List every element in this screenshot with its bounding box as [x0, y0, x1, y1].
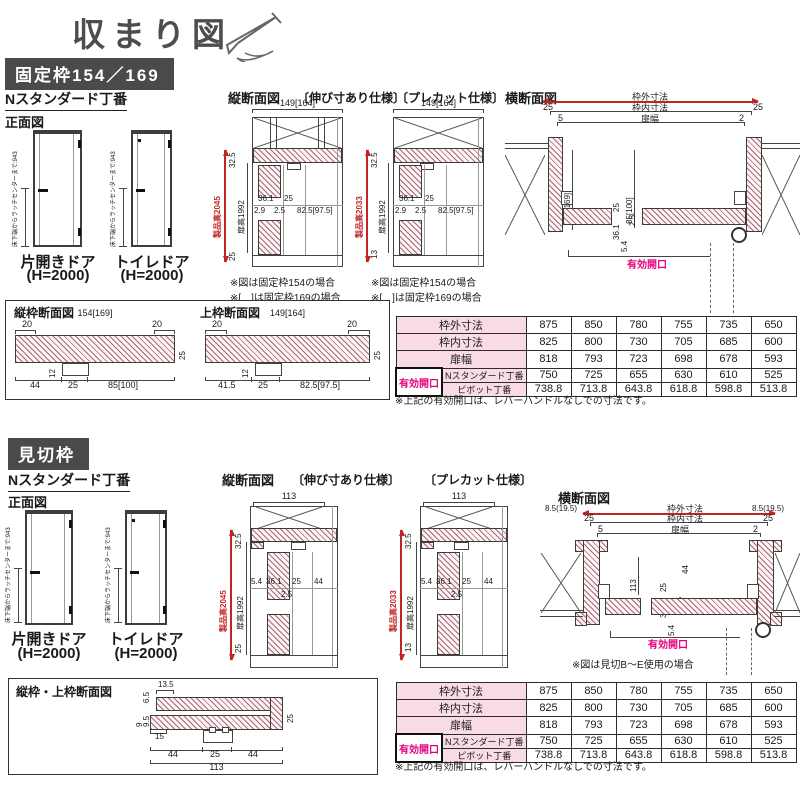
- dim-label: 20: [22, 320, 32, 330]
- dim-label: 8.5(19.5): [545, 505, 577, 514]
- s1-door2-drawing: [131, 130, 172, 247]
- dim-label: 2: [753, 525, 758, 535]
- wall-x-icon: [541, 553, 581, 613]
- stop-nub: [209, 727, 216, 733]
- s2-door2-drawing: [125, 510, 167, 625]
- s2-vs2-product-height: 製品高2033: [390, 590, 398, 632]
- cell: 780: [616, 317, 661, 334]
- stop-profile: [62, 363, 89, 376]
- cell: 825: [526, 700, 571, 717]
- row-label: 枠内寸法: [396, 334, 526, 351]
- cell: 598.8: [706, 382, 751, 396]
- trim-frame-section: [251, 528, 337, 542]
- dim-label: 25: [68, 381, 78, 391]
- cell: 800: [571, 334, 616, 351]
- row-label: 枠外寸法: [396, 317, 526, 334]
- s2-vs2-bottom-gap: 13: [405, 643, 413, 652]
- s1-latch-dim-text: 床下端からラッチセンターまで:943: [111, 151, 117, 247]
- dim-label: 25: [258, 381, 268, 391]
- wall-line: [540, 616, 583, 617]
- cell: 698: [661, 717, 706, 735]
- dim-tick: [251, 377, 252, 382]
- s1-vs2-note1: ※図は固定枠154の場合: [371, 274, 476, 289]
- dim-label: 2.5: [281, 591, 292, 600]
- dim-label: 5.4: [668, 625, 676, 636]
- cell: 818: [526, 351, 571, 369]
- cell: 618.8: [661, 748, 706, 762]
- cell: 730: [616, 334, 661, 351]
- latch-block: [747, 584, 759, 599]
- dim-line: [15, 330, 36, 334]
- section1-banner: 固定枠154／169: [5, 58, 174, 90]
- trim-profile-lower: [150, 715, 283, 730]
- s2-vs1-door-height: 扉高1992: [237, 596, 245, 630]
- s1-hs-opening-label: 有効開口: [627, 260, 667, 271]
- cell: 755: [661, 317, 706, 334]
- product-height-arrow: [400, 530, 402, 660]
- latch-dim-line: [18, 568, 19, 622]
- dim-label: 36.1: [436, 578, 452, 587]
- cell: 685: [706, 334, 751, 351]
- dim-tick: [279, 377, 280, 382]
- cell: 630: [661, 368, 706, 382]
- cell: 825: [526, 334, 571, 351]
- s1-vs2-door-height: 扉高1992: [379, 200, 387, 234]
- dim-label: 44: [314, 578, 323, 587]
- door-stop: [420, 163, 434, 170]
- door-leaf-line: [131, 514, 132, 623]
- door-panel-section: [563, 208, 612, 225]
- s1-door2-height: (H=2000): [112, 267, 192, 284]
- wall-x-icon: [254, 118, 341, 148]
- cell: 685: [706, 700, 751, 717]
- s1-vs1-top-gap: 32.5: [229, 152, 237, 168]
- top-frame-section: [253, 148, 342, 163]
- door-stop: [287, 163, 301, 170]
- wall-line: [276, 117, 277, 148]
- frame-profile: [205, 335, 370, 363]
- s2-vs1-top-dim: 113: [253, 492, 325, 502]
- cell: 598.8: [706, 748, 751, 762]
- s1-vs2-top-gap: 32.5: [371, 152, 379, 168]
- latch-dim-line: [123, 188, 124, 246]
- row-label: 扉幅: [396, 351, 526, 369]
- wall-line: [270, 117, 271, 148]
- s2-door2-height: (H=2000): [106, 645, 186, 662]
- dim-tick: [21, 246, 29, 247]
- dim-label: 2.9: [395, 207, 406, 216]
- dim-tick: [114, 622, 122, 623]
- cell: 793: [571, 717, 616, 735]
- s1-vs1-door-height: 扉高1992: [238, 200, 246, 234]
- dim-label: 44: [168, 750, 178, 760]
- dim-label: 41.5: [218, 381, 236, 391]
- s2-vs1-bottom-gap: 25: [235, 644, 243, 653]
- door-leaf-line: [31, 514, 32, 623]
- door-section: [437, 614, 460, 655]
- door-leaf-line: [73, 134, 74, 245]
- floor-line: [252, 255, 343, 256]
- cell: 875: [526, 317, 571, 334]
- door-height-line: [246, 542, 247, 655]
- section2-hinge-type: Nスタンダード丁番: [8, 470, 130, 492]
- dim-label: 25: [374, 351, 382, 360]
- wall-line: [505, 148, 548, 149]
- dim-label: 5: [558, 114, 563, 124]
- dim-line: [252, 109, 343, 113]
- cell: 750: [526, 734, 571, 748]
- s1-vs1-bottom-gap: 25: [229, 252, 237, 261]
- trim-profile-upper: [156, 697, 282, 711]
- s2-vs2-door-height: 扉高1992: [407, 596, 415, 630]
- wall-x-icon: [395, 118, 482, 148]
- door-swing-dash: [726, 628, 727, 675]
- floor-line: [250, 655, 338, 656]
- dim-label: 44: [248, 750, 258, 760]
- s2-vs1-tag: 〔伸び寸あり仕様〕: [292, 471, 400, 488]
- dim-label: 25: [584, 514, 594, 524]
- wall-line: [318, 117, 319, 148]
- wall-face-line: [337, 117, 338, 267]
- frame-line: [292, 552, 293, 655]
- cell: 698: [661, 351, 706, 369]
- cell: 655: [616, 734, 661, 748]
- dim-label: 5: [598, 525, 603, 535]
- row-label: Nスタンダード丁番: [442, 734, 526, 748]
- dim-label: 154[169]: [15, 309, 175, 319]
- cell: 725: [571, 368, 616, 382]
- wall-x-icon: [505, 155, 545, 235]
- dim-label: 20: [347, 320, 357, 330]
- hinge-block: [598, 584, 610, 599]
- door-stop: [454, 542, 469, 550]
- dim-label: 25: [753, 103, 763, 113]
- door-section: [258, 220, 281, 255]
- dim-tick: [114, 568, 122, 569]
- dim-label: 20: [152, 320, 162, 330]
- cell: 655: [616, 368, 661, 382]
- door-swing-dash: [751, 628, 752, 675]
- dim-label: 15: [155, 733, 164, 742]
- dim-label: 2: [739, 114, 744, 124]
- cell: 525: [751, 734, 796, 748]
- frame-line: [462, 552, 463, 655]
- s2-vs1-product-height: 製品高2045: [220, 590, 228, 632]
- section1-hinge-type: Nスタンダード丁番: [5, 89, 127, 111]
- dim-line: [205, 330, 227, 334]
- dim-label: 85[100]: [108, 381, 138, 391]
- cell: 793: [571, 351, 616, 369]
- wall-x-icon: [775, 553, 800, 613]
- dim-tick: [61, 377, 62, 382]
- cell: 650: [751, 317, 796, 334]
- s2-latch-dim-text: 床下端からラッチセンターまで:943: [106, 527, 112, 623]
- s1-latch-dim-text: 床下端からラッチセンターまで:943: [13, 151, 19, 247]
- latch-dim-line: [25, 188, 26, 246]
- s2-fs-label: 縦枠・上枠断面図: [16, 686, 112, 699]
- wall-line: [774, 616, 800, 617]
- cell: 735: [706, 317, 751, 334]
- trim-tab: [770, 612, 782, 626]
- dim-label: 25: [292, 578, 301, 587]
- s2-vert-section-label: 縦断面図: [222, 470, 274, 489]
- door-hinge: [78, 140, 81, 148]
- opening-dim-line: [610, 637, 740, 638]
- wall-face-line: [478, 117, 479, 267]
- row-label: Nスタンダード丁番: [442, 368, 526, 382]
- dim-line: [638, 557, 639, 595]
- row-label: 枠外寸法: [396, 683, 526, 700]
- cell: 593: [751, 351, 796, 369]
- dim-label: 44: [484, 578, 493, 587]
- dim-tick: [14, 622, 22, 623]
- trim-profile-end: [270, 697, 283, 730]
- dim-label: 6.5: [143, 692, 151, 703]
- product-height-arrow: [366, 150, 368, 262]
- cell: 650: [751, 683, 796, 700]
- right-jamb-section: [746, 137, 762, 232]
- door-handle: [136, 189, 145, 192]
- trim-tab: [251, 542, 264, 549]
- dim-label: 25: [287, 714, 295, 723]
- dim-tick: [202, 747, 203, 752]
- dim-label: 113: [150, 763, 283, 773]
- dim-label: 2.5: [415, 207, 426, 216]
- dim-label: 25: [543, 103, 553, 113]
- dim-line: [250, 588, 338, 589]
- cell: 513.8: [751, 382, 796, 396]
- door-panel-section: [642, 208, 746, 225]
- s1-vs2-bottom-gap: 13: [371, 250, 379, 259]
- wall-x-icon: [256, 507, 322, 529]
- s1-door1-drawing: [33, 130, 82, 247]
- dim-label: 2.5: [451, 591, 462, 600]
- s2-latch-dim-text: 床下端からラッチセンターまで:943: [6, 527, 12, 623]
- cell: 678: [706, 351, 751, 369]
- door-hinge: [168, 228, 171, 236]
- cell: 875: [526, 683, 571, 700]
- door-width-label: 扉幅: [660, 526, 700, 536]
- s2-vs1-top-gap: 32.5: [235, 533, 243, 549]
- door-handle: [130, 571, 139, 574]
- door-hinge: [69, 606, 72, 614]
- stop-nub: [222, 727, 229, 733]
- cell: 705: [661, 700, 706, 717]
- door-panel-section: [605, 598, 641, 615]
- product-height-arrow: [230, 530, 232, 660]
- s2-vs2-top-gap: 32.5: [405, 533, 413, 549]
- dim-label: 2.9: [254, 207, 265, 216]
- door-height-line: [416, 542, 417, 655]
- dim-label: 113: [630, 579, 638, 592]
- door-lock-indicator: [132, 519, 135, 522]
- dim-line: [154, 330, 175, 334]
- inner-dim-label: 枠内寸法: [655, 515, 715, 525]
- left-jamb-section: [548, 137, 563, 232]
- s1-vs2-product-height: 製品高2033: [356, 196, 364, 238]
- dim-tick: [14, 568, 22, 569]
- latch-dim-line: [118, 568, 119, 622]
- dim-label: 36.1: [258, 195, 274, 204]
- s2-door1-drawing: [25, 510, 73, 625]
- frame-profile: [15, 335, 175, 363]
- trim-tab: [421, 542, 434, 549]
- dim-label: 25: [179, 351, 187, 360]
- door-leaf-line: [159, 514, 160, 623]
- s1-table-note: ※上記の有効開口は、レバーハンドルなしでの寸法です。: [395, 392, 652, 407]
- pivot-hinge-circle: [755, 622, 771, 638]
- dim-label: 20: [212, 320, 222, 330]
- dim-label: 5.4: [421, 578, 432, 587]
- dim-label: 2.5: [274, 207, 285, 216]
- dim-label: 44: [682, 565, 690, 574]
- door-hinge: [78, 228, 81, 236]
- dim-label: 25: [210, 750, 220, 760]
- s2-hs-opening-label: 有効開口: [648, 640, 688, 651]
- door-section: [399, 220, 422, 255]
- cell: 723: [616, 717, 661, 735]
- trim-tab: [575, 612, 587, 626]
- s1-door1-height: (H=2000): [18, 267, 98, 284]
- dim-tick: [119, 188, 127, 189]
- door-stop: [291, 542, 306, 550]
- s1-vs1-top-dim: 149[164]: [252, 99, 343, 109]
- latch-block: [734, 191, 746, 205]
- wall-face-line: [332, 506, 333, 668]
- door-height-line: [388, 163, 389, 253]
- door-width-label: 扉幅: [630, 115, 670, 125]
- s2-front-view-label: 正面図: [8, 492, 47, 511]
- door-lock-indicator: [138, 139, 141, 142]
- s1-vs1-product-height: 製品高2045: [214, 196, 222, 238]
- dim-label: 36.1: [266, 578, 282, 587]
- door-panel-section: [651, 598, 757, 615]
- door-height-line: [247, 163, 248, 253]
- s2-door1-height: (H=2000): [9, 645, 89, 662]
- section2-banner: 見切枠: [8, 438, 89, 470]
- s1-dimension-table: 枠外寸法 875850780755735650 枠内寸法 82580073070…: [395, 316, 797, 397]
- dim-label: 82.5[97.5]: [297, 207, 333, 216]
- dim-line: [156, 690, 174, 694]
- dim-label: 82.5[97.5]: [438, 207, 474, 216]
- cell: 780: [616, 683, 661, 700]
- wall-line: [762, 143, 800, 144]
- dim-label: 5.4: [251, 578, 262, 587]
- cell: 525: [751, 368, 796, 382]
- wall-line: [324, 117, 325, 148]
- door-swing-dash: [710, 243, 711, 313]
- door-hinge: [163, 606, 166, 614]
- dim-label: 25: [660, 583, 668, 592]
- cell: 750: [526, 368, 571, 382]
- top-frame-section: [394, 148, 483, 163]
- frame-line: [312, 552, 313, 655]
- dim-label: 36.1: [399, 195, 415, 204]
- cell: 678: [706, 717, 751, 735]
- outer-dim-label: 枠外寸法: [620, 93, 680, 103]
- cell: 850: [571, 683, 616, 700]
- cell: 610: [706, 734, 751, 748]
- wall-x-icon: [762, 155, 800, 235]
- cell: 705: [661, 334, 706, 351]
- door-hinge: [163, 520, 166, 528]
- dim-label: 25: [613, 203, 621, 212]
- opening-dim-line: [568, 256, 710, 257]
- s1-front-view-label: 正面図: [5, 112, 44, 131]
- dim-line: [393, 109, 484, 113]
- dim-label: 44: [30, 381, 40, 391]
- door-hinge: [69, 520, 72, 528]
- s2-table-note: ※上記の有効開口は、レバーハンドルなしでの寸法です。: [395, 758, 652, 773]
- dim-label: 2.5: [629, 215, 637, 226]
- door-leaf-line: [64, 514, 65, 623]
- dim-label: 36.1: [613, 224, 621, 240]
- inner-dim-label: 枠内寸法: [620, 104, 680, 114]
- cell: 610: [706, 368, 751, 382]
- s2-vs2-tag: 〔プレカット仕様〕: [424, 471, 532, 488]
- cell: 630: [661, 734, 706, 748]
- cell: 600: [751, 334, 796, 351]
- door-hinge: [168, 140, 171, 148]
- row-label: 枠内寸法: [396, 700, 526, 717]
- s2-hs-note: ※図は見切B〜E使用の場合: [572, 656, 694, 671]
- dim-label: 5.4: [621, 241, 629, 252]
- cell: 735: [706, 683, 751, 700]
- frame-line: [482, 552, 483, 655]
- cell: 723: [616, 351, 661, 369]
- s1-vs1-note1: ※図は固定枠154の場合: [230, 274, 335, 289]
- door-swing-dash: [733, 243, 734, 313]
- cell: 600: [751, 700, 796, 717]
- trim-frame-section: [421, 528, 507, 542]
- cell: 618.8: [661, 382, 706, 396]
- product-height-arrow: [224, 150, 226, 262]
- s1-vs2-top-dim: 149[164]: [393, 99, 484, 109]
- door-handle: [30, 571, 40, 574]
- floor-line: [420, 655, 508, 656]
- cell: 755: [661, 683, 706, 700]
- cell: 725: [571, 734, 616, 748]
- dim-label: 25: [763, 514, 773, 524]
- dim-line: [420, 588, 508, 589]
- dim-label: 149[164]: [205, 309, 370, 319]
- wall-face-line: [502, 506, 503, 668]
- dim-tick: [231, 747, 232, 752]
- dim-label: 25: [284, 195, 293, 204]
- dim-label: 25: [425, 195, 434, 204]
- catalog-page: 収まり図 固定枠154／169 Nスタンダード丁番 正面図 床下端からラッチセン…: [0, 0, 800, 800]
- pencil-icon: [212, 12, 290, 62]
- dim-label: 9: [136, 723, 144, 727]
- s2-vs2-top-dim: 113: [423, 492, 495, 502]
- dim-tick: [87, 377, 88, 382]
- wall-line: [505, 143, 548, 144]
- dim-tick: [119, 246, 127, 247]
- cell: 850: [571, 317, 616, 334]
- dim-label: 82.5[97.5]: [300, 381, 340, 391]
- cell: 730: [616, 700, 661, 717]
- door-leaf-line: [164, 134, 165, 245]
- dim-tick: [21, 188, 29, 189]
- door-section: [267, 614, 290, 655]
- stop-profile: [255, 363, 282, 376]
- page-title: 収まり図: [72, 8, 232, 56]
- pivot-hinge-circle: [731, 227, 747, 243]
- dim-label: 25: [462, 578, 471, 587]
- door-handle: [38, 189, 48, 192]
- wall-x-icon: [426, 507, 492, 529]
- cell: 818: [526, 717, 571, 735]
